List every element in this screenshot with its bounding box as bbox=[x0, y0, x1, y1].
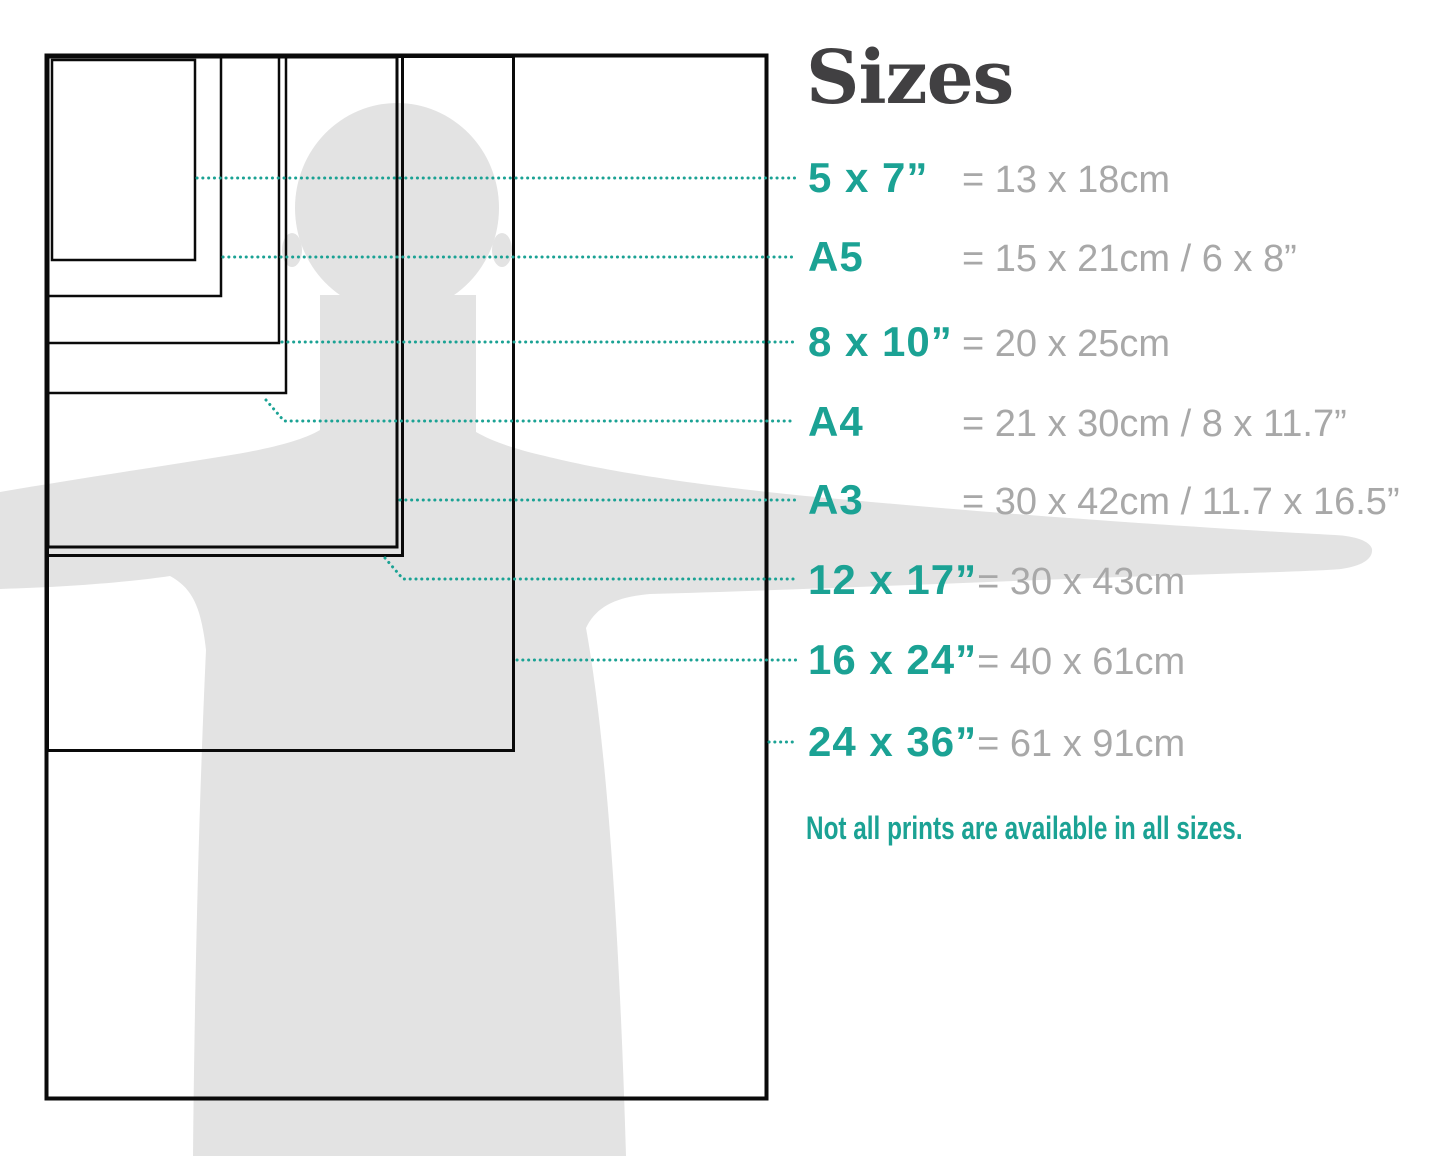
print-size-guide: Sizes 5 x 7”= 13 x 18cmA5= 15 x 21cm / 6… bbox=[0, 0, 1445, 1156]
availability-note: Not all prints are available in all size… bbox=[806, 810, 1243, 847]
silhouette-body-icon bbox=[0, 295, 1372, 1156]
person-silhouette bbox=[0, 103, 1372, 1156]
size-rect-5x7 bbox=[52, 60, 195, 260]
size-rect-8x10 bbox=[48, 57, 279, 343]
page-title: Sizes bbox=[806, 40, 1013, 118]
silhouette-ear-right-icon bbox=[492, 233, 512, 267]
size-diagram bbox=[0, 0, 1445, 1156]
